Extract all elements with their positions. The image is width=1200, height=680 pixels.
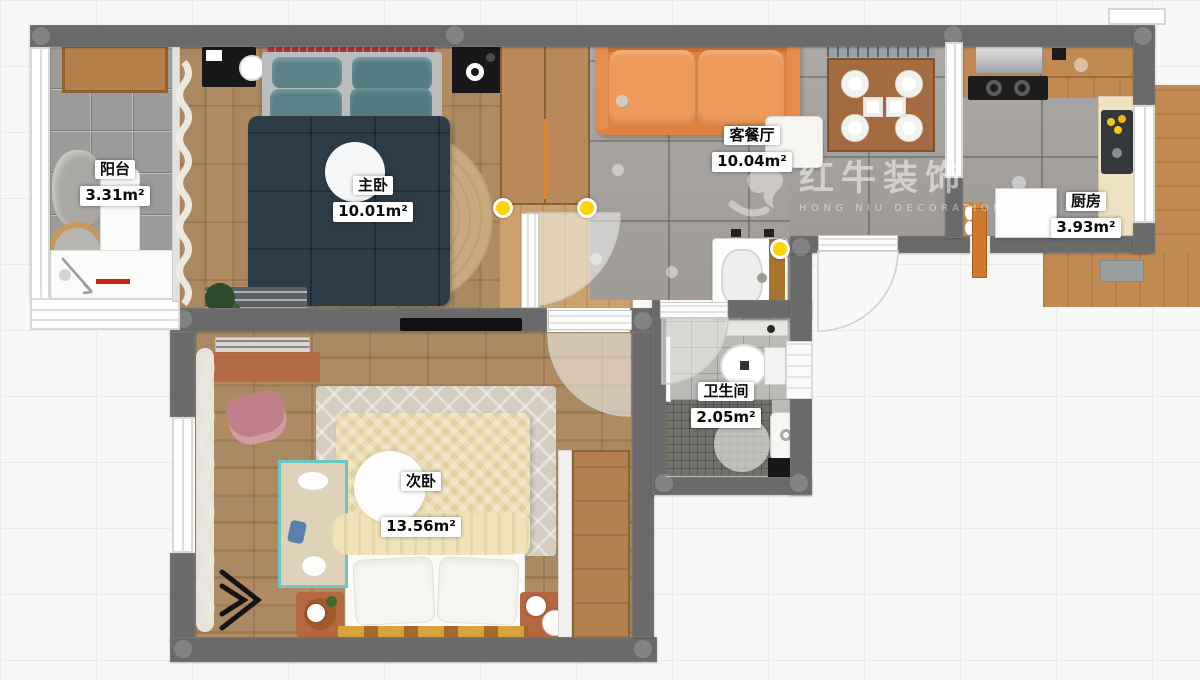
room-area: 2.05m² [691, 408, 760, 427]
toilet-tank [764, 347, 786, 385]
window-mullion [40, 49, 42, 298]
room-name: 厨房 [1066, 192, 1106, 211]
plate [895, 114, 923, 142]
wall-bedroom2-bottom [170, 637, 657, 662]
wall-joint [655, 474, 673, 492]
room-label-second-bedroom: 次卧 13.56m² [366, 472, 476, 537]
wall-joint [174, 310, 192, 328]
room-label-balcony: 阳台 3.31m² [70, 160, 160, 206]
sofa-cushion [698, 50, 784, 126]
floor-drain [768, 458, 790, 478]
wall-bathroom-bottom [652, 477, 812, 495]
toiletry [767, 325, 775, 333]
wall-bathroom-top [652, 300, 660, 318]
floor-dot [590, 253, 602, 265]
plate [895, 70, 923, 98]
wall-joint [792, 238, 810, 256]
wall-tap [731, 229, 741, 237]
bathroom-door [660, 302, 728, 318]
balcony-door-frame [172, 47, 180, 302]
master-door [521, 213, 539, 308]
room-label-master-bedroom: 主卧 10.01m² [320, 176, 426, 222]
wardrobe-handle [544, 119, 547, 199]
counter-sink [1100, 260, 1144, 282]
second-wardrobe [572, 450, 630, 640]
entrance-door-swing-arc [818, 251, 898, 331]
lemon [1114, 126, 1122, 134]
room-label-bathroom: 卫生间 2.05m² [676, 382, 776, 428]
balcony-cabinet [62, 45, 168, 93]
desk-paper [206, 50, 222, 61]
food-dish [886, 97, 906, 117]
wall-tap [764, 229, 774, 237]
kitchen-sink [1101, 110, 1133, 174]
wall-joint [446, 26, 464, 44]
room-label-living-dining: 客餐厅 10.04m² [702, 126, 802, 172]
table-lamp [526, 596, 546, 616]
sink-faucet [1112, 148, 1122, 158]
wardrobe-track [558, 450, 572, 640]
room-area: 3.93m² [1051, 218, 1120, 237]
window-mullion [1144, 107, 1146, 221]
sofa-cushion [609, 50, 695, 126]
kitchen-door-open-panel [972, 208, 987, 278]
terracotta-rug [210, 352, 320, 382]
room-area: 13.56m² [381, 517, 461, 536]
faucet [757, 273, 767, 283]
bedroom2-door [548, 310, 632, 330]
window-mullion [32, 319, 178, 321]
wall-bedroom2-right [632, 332, 654, 637]
small-plant [326, 596, 337, 607]
floor-dot [666, 266, 678, 278]
room-name: 主卧 [353, 176, 393, 195]
burner [1014, 80, 1030, 96]
wall-kitchen-bottom [990, 236, 1150, 253]
counter-knob [59, 269, 71, 281]
wall-bedroom2-left [170, 332, 195, 417]
wall-joint [1134, 27, 1152, 45]
wardrobe [500, 42, 590, 205]
master-nightstand [452, 47, 500, 93]
burner [986, 80, 1002, 96]
lemon [1118, 115, 1126, 123]
pillow [436, 556, 519, 626]
window-mullion [182, 419, 184, 551]
balcony-window-left [30, 47, 50, 300]
room-area: 10.04m² [712, 152, 792, 171]
marker-dot [770, 239, 790, 259]
kettle [301, 555, 327, 577]
room-name: 卫生间 [698, 382, 753, 401]
lemon [1107, 118, 1115, 126]
wall-kitchen-stub [945, 178, 963, 238]
red-tool [96, 279, 130, 284]
speaker-ring [466, 63, 484, 81]
wall-joint [944, 26, 962, 44]
bathroom-shelf [786, 341, 812, 399]
plate [841, 114, 869, 142]
cabinet-handle [1052, 48, 1066, 60]
toilet-button [740, 361, 749, 370]
wall-joint [32, 290, 50, 308]
room-name: 次卧 [401, 472, 441, 491]
outside-counter [1043, 253, 1200, 307]
room-label-kitchen: 厨房 3.93m² [1036, 192, 1136, 238]
knob [486, 53, 495, 62]
kitchen-glass-partition [945, 42, 963, 178]
food-dish [863, 97, 883, 117]
cooktop [968, 76, 1048, 100]
wall-kitchen-right [1133, 223, 1155, 253]
balcony-window-bottom [30, 298, 180, 330]
blue-cloth [287, 520, 307, 545]
floor-dot [1074, 58, 1088, 72]
wall-top [30, 25, 1155, 47]
pillow [272, 57, 342, 88]
marker-dot [493, 198, 513, 218]
wall-joint [790, 474, 808, 492]
exterior-window [1108, 8, 1166, 25]
wall-bathroom-left [652, 318, 666, 478]
glass-line [954, 44, 956, 176]
wall-bedroom2-left [170, 553, 195, 642]
room-name: 客餐厅 [724, 126, 779, 145]
sofa-arm [595, 42, 608, 130]
floor-dot [612, 164, 624, 176]
nightstand [296, 592, 344, 637]
wall-living-bottom [898, 236, 970, 253]
wall-joint [634, 312, 652, 330]
window-mullion [32, 309, 178, 311]
pillow [352, 57, 432, 90]
wall-joint [634, 640, 652, 658]
dining-table [827, 58, 935, 152]
floor-plan-canvas: 阳台 3.31m² 主卧 10.01m² 客餐厅 10.04m² 厨房 3.93… [0, 0, 1200, 680]
table-lamp [307, 604, 325, 622]
fluffy-runner [196, 348, 214, 632]
floor-dot [616, 95, 628, 107]
room-area: 3.31m² [80, 186, 149, 205]
wall-joint [174, 640, 192, 658]
bathroom-ledge [726, 320, 788, 336]
kitchen-window [1133, 105, 1155, 223]
marker-dot [577, 198, 597, 218]
tv [400, 318, 522, 331]
entrance-door [818, 235, 898, 251]
bedroom2-window [172, 417, 193, 553]
plate [841, 70, 869, 98]
bowl [297, 471, 329, 491]
pillow [352, 556, 435, 626]
wall-joint [32, 27, 50, 45]
room-name: 阳台 [95, 160, 135, 179]
room-area: 10.01m² [333, 202, 413, 221]
